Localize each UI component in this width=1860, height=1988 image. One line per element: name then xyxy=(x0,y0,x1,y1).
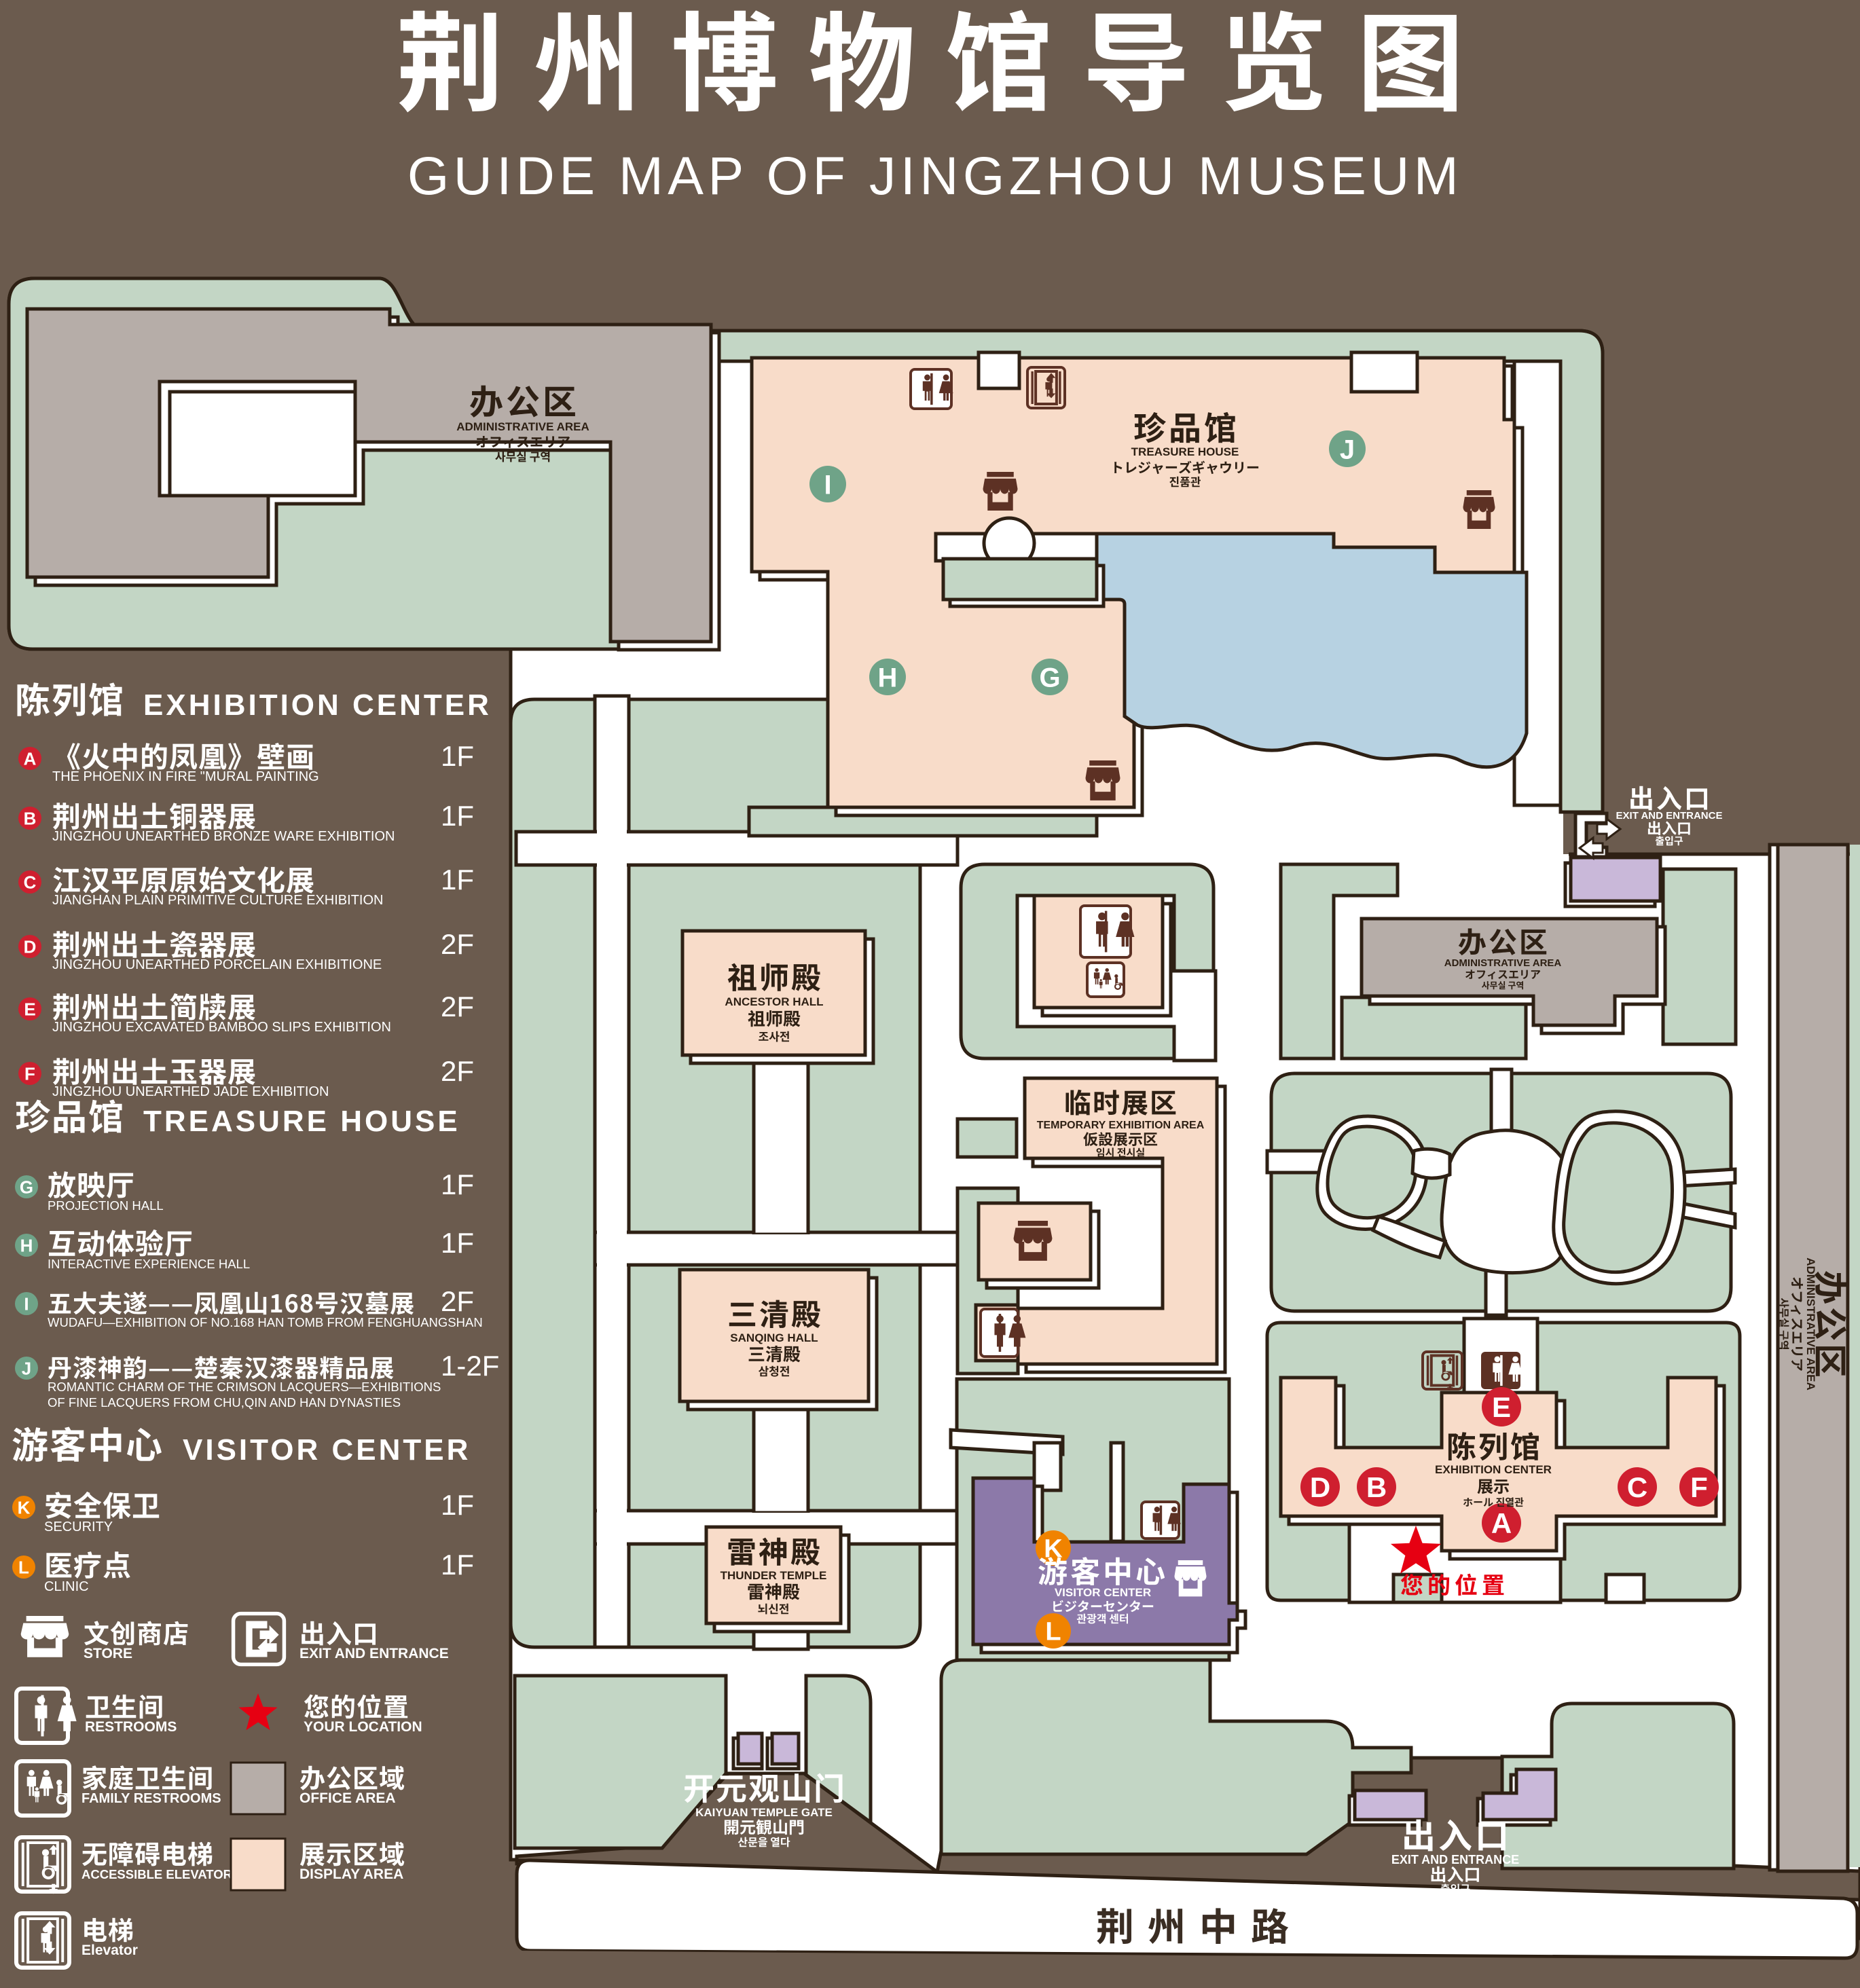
svg-text:ACCESSIBLE ELEVATOR: ACCESSIBLE ELEVATOR xyxy=(81,1867,232,1881)
svg-text:1F: 1F xyxy=(441,1168,474,1200)
svg-text:ADMINISTRATIVE AREA: ADMINISTRATIVE AREA xyxy=(1804,1257,1817,1391)
svg-text:2F: 2F xyxy=(441,928,474,960)
svg-text:2F: 2F xyxy=(441,991,474,1023)
svg-text:I: I xyxy=(824,470,831,500)
svg-text:1F: 1F xyxy=(441,1227,474,1259)
svg-text:L: L xyxy=(1045,1618,1061,1646)
svg-text:INTERACTIVE EXPERIENCE HALL: INTERACTIVE EXPERIENCE HALL xyxy=(48,1257,250,1271)
svg-text:1F: 1F xyxy=(441,1549,474,1581)
svg-text:THE PHOENIX IN FIRE "MURAL PAI: THE PHOENIX IN FIRE "MURAL PAINTING xyxy=(52,769,319,784)
svg-text:H: H xyxy=(20,1235,33,1255)
svg-text:GUIDE MAP OF JINGZHOU MUSEUM: GUIDE MAP OF JINGZHOU MUSEUM xyxy=(407,145,1463,206)
svg-text:H: H xyxy=(878,663,898,693)
svg-text:VISITOR CENTER: VISITOR CENTER xyxy=(1055,1586,1151,1599)
svg-text:2F: 2F xyxy=(441,1055,474,1087)
svg-text:1F: 1F xyxy=(441,740,474,772)
svg-text:VISITOR CENTER: VISITOR CENTER xyxy=(183,1433,471,1467)
svg-text:A: A xyxy=(24,748,37,769)
svg-text:THUNDER TEMPLE: THUNDER TEMPLE xyxy=(721,1569,827,1582)
svg-text:JINGZHOU EXCAVATED BAMBOO SLIP: JINGZHOU EXCAVATED BAMBOO SLIPS EXHIBITI… xyxy=(52,1020,391,1035)
svg-text:D: D xyxy=(1310,1471,1330,1503)
svg-text:KAIYUAN TEMPLE GATE: KAIYUAN TEMPLE GATE xyxy=(695,1806,833,1819)
svg-text:1-2F: 1-2F xyxy=(441,1350,499,1382)
svg-text:TREASURE HOUSE: TREASURE HOUSE xyxy=(143,1105,460,1138)
svg-text:CLINIC: CLINIC xyxy=(44,1579,89,1594)
svg-text:OF FINE LACQUERS FROM CHU,QIN: OF FINE LACQUERS FROM CHU,QIN AND HAN DY… xyxy=(48,1395,401,1410)
svg-text:STORE: STORE xyxy=(84,1646,132,1661)
svg-text:SECURITY: SECURITY xyxy=(44,1520,113,1534)
svg-text:PROJECTION HALL: PROJECTION HALL xyxy=(48,1198,164,1213)
svg-text:C: C xyxy=(1627,1471,1647,1503)
svg-text:YOUR LOCATION: YOUR LOCATION xyxy=(304,1719,422,1735)
svg-text:F: F xyxy=(1690,1471,1708,1503)
svg-text:C: C xyxy=(24,872,37,892)
svg-text:D: D xyxy=(24,936,37,957)
svg-text:B: B xyxy=(24,808,37,828)
svg-text:EXHIBITION CENTER: EXHIBITION CENTER xyxy=(143,688,492,722)
svg-text:FAMILY RESTROOMS: FAMILY RESTROOMS xyxy=(81,1791,221,1806)
svg-text:I: I xyxy=(24,1293,29,1314)
svg-text:OFFICE AREA: OFFICE AREA xyxy=(299,1790,396,1806)
svg-text:L: L xyxy=(18,1557,29,1577)
svg-text:TEMPORARY EXHIBITION AREA: TEMPORARY EXHIBITION AREA xyxy=(1037,1120,1205,1131)
svg-text:SANQING HALL: SANQING HALL xyxy=(730,1331,818,1344)
svg-text:ADMINISTRATIVE AREA: ADMINISTRATIVE AREA xyxy=(456,420,589,433)
svg-text:ADMINISTRATIVE AREA: ADMINISTRATIVE AREA xyxy=(1444,957,1562,969)
svg-text:B: B xyxy=(1366,1471,1387,1503)
svg-text:K: K xyxy=(18,1497,31,1517)
svg-text:EXHIBITION CENTER: EXHIBITION CENTER xyxy=(1435,1463,1552,1476)
svg-text:1F: 1F xyxy=(441,864,474,896)
svg-text:TREASURE HOUSE: TREASURE HOUSE xyxy=(1131,445,1239,458)
svg-text:2F: 2F xyxy=(441,1285,474,1317)
svg-text:DISPLAY AREA: DISPLAY AREA xyxy=(299,1866,403,1882)
svg-text:EXIT AND ENTRANCE: EXIT AND ENTRANCE xyxy=(299,1646,449,1661)
svg-text:RESTROOMS: RESTROOMS xyxy=(85,1719,177,1735)
svg-text:WUDAFU—EXHIBITION OF NO.168 HA: WUDAFU—EXHIBITION OF NO.168 HAN TOMB FRO… xyxy=(48,1315,483,1329)
svg-text:1F: 1F xyxy=(441,800,474,832)
svg-text:G: G xyxy=(1039,663,1060,693)
svg-text:EXIT AND ENTRANCE: EXIT AND ENTRANCE xyxy=(1616,810,1723,822)
svg-text:EXIT AND ENTRANCE: EXIT AND ENTRANCE xyxy=(1391,1853,1519,1866)
svg-text:ANCESTOR HALL: ANCESTOR HALL xyxy=(725,995,823,1008)
svg-text:JIANGHAN PLAIN PRIMITIVE CULTU: JIANGHAN PLAIN PRIMITIVE CULTURE EXHIBIT… xyxy=(52,893,383,908)
svg-text:Elevator: Elevator xyxy=(81,1943,138,1958)
svg-text:J: J xyxy=(22,1358,31,1378)
svg-text:F: F xyxy=(24,1063,35,1084)
svg-text:JINGZHOU UNEARTHED BRONZE WARE: JINGZHOU UNEARTHED BRONZE WARE EXHIBITIO… xyxy=(52,829,395,844)
svg-text:1F: 1F xyxy=(441,1489,474,1521)
svg-text:G: G xyxy=(20,1177,33,1197)
svg-text:ROMANTIC CHARM OF THE CRIMSON: ROMANTIC CHARM OF THE CRIMSON LACQUERS—E… xyxy=(48,1380,441,1394)
svg-text:A: A xyxy=(1491,1507,1512,1539)
svg-text:E: E xyxy=(1492,1391,1511,1423)
svg-text:E: E xyxy=(24,999,35,1019)
svg-text:JINGZHOU UNEARTHED JADE EXHIBI: JINGZHOU UNEARTHED JADE EXHIBITION xyxy=(52,1084,329,1099)
svg-text:JINGZHOU UNEARTHED PORCELAIN E: JINGZHOU UNEARTHED PORCELAIN EXHIBITIONE xyxy=(52,957,382,972)
svg-text:J: J xyxy=(1340,435,1355,464)
